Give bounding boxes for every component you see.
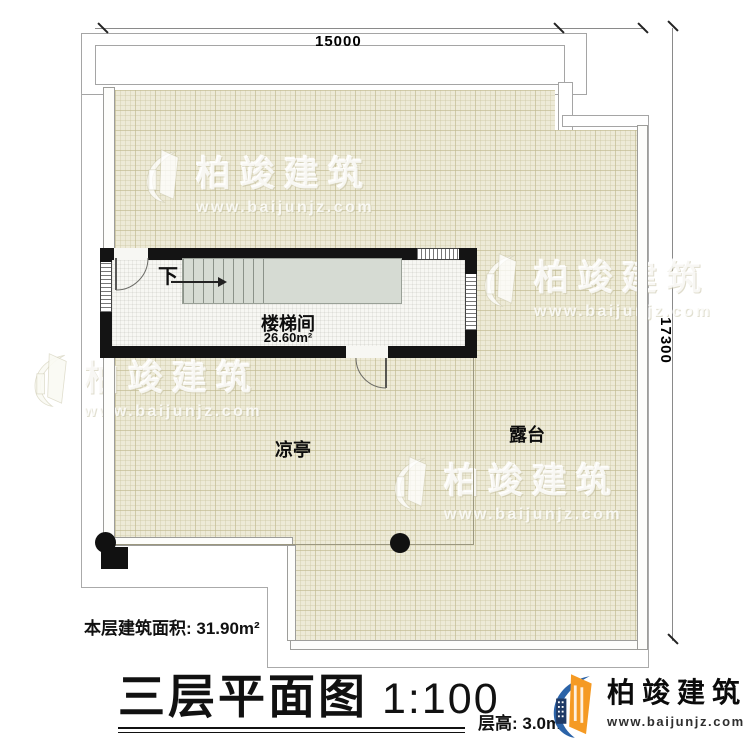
dim-right-label: 17300 xyxy=(657,317,674,364)
window-top xyxy=(417,248,459,260)
eave-outline-step-h xyxy=(82,587,267,588)
brand-logo-url: www.baijunjz.com xyxy=(607,714,747,729)
watermark-icon xyxy=(26,350,74,410)
dim-tick xyxy=(667,20,678,31)
floor-plan: 15000 17300 柏竣建筑 www.baijunjz.com 柏竣建筑 w… xyxy=(0,0,750,746)
eave-step-horizontal xyxy=(562,115,649,127)
stairs-down-label: 下 xyxy=(158,260,178,289)
stairs-direction-arrow xyxy=(218,277,227,287)
plan-title: 三层平面图 xyxy=(118,670,368,723)
room-label-terrace: 露台 xyxy=(492,421,562,447)
railing-cut-vertical xyxy=(287,545,296,641)
pavilion-boundary-horizontal xyxy=(115,544,474,545)
dim-top-label: 15000 xyxy=(315,33,362,50)
dim-tick xyxy=(667,633,678,644)
room-label-pavilion: 凉亭 xyxy=(258,436,328,462)
pavilion-column xyxy=(390,533,410,553)
room-area-stairwell: 26.60m² xyxy=(228,330,348,345)
window-right xyxy=(465,274,477,330)
dim-top-line xyxy=(95,28,645,29)
railing-bottom xyxy=(290,640,648,650)
corner-column xyxy=(101,547,128,569)
door-swing-top-left xyxy=(111,253,153,295)
railing-right xyxy=(637,125,648,650)
brand-logo-name: 柏竣建筑 xyxy=(607,671,747,711)
brand-logo-icon xyxy=(543,671,601,741)
pavilion-boundary-vertical xyxy=(473,358,474,545)
title-underline xyxy=(118,727,465,733)
stairwell-wall-bottom xyxy=(100,346,477,358)
stairs-direction-line xyxy=(171,281,219,283)
eave-outline-left xyxy=(81,93,82,588)
brand-logo: 柏竣建筑 www.baijunjz.com xyxy=(543,671,747,741)
eave-outline-step-v xyxy=(267,587,268,667)
floor-area-text: 本层建筑面积: 31.90m² xyxy=(84,614,260,639)
door-swing-bottom xyxy=(350,352,392,394)
plan-title-row: 三层平面图1:100 xyxy=(118,658,500,727)
eave-outline-right xyxy=(648,122,649,667)
parapet-band-inner xyxy=(95,45,565,85)
